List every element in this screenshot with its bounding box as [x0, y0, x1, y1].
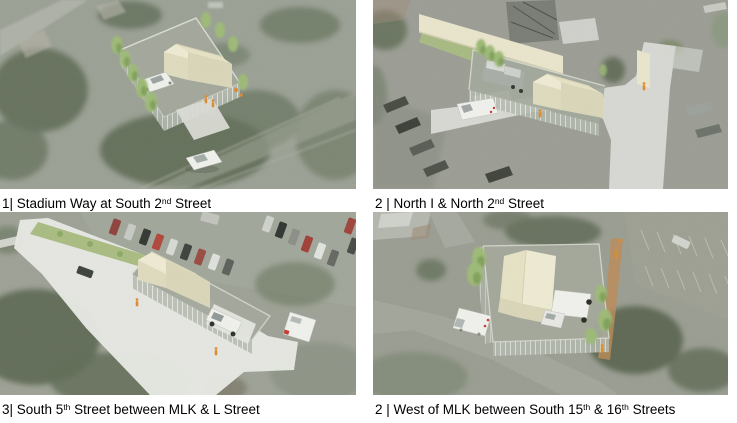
caption-superscript: nd [495, 196, 504, 206]
caption-panel-2: 2 | North I & North 2nd Street [375, 190, 544, 212]
photo-grain-overlay [373, 212, 728, 395]
photo-grain-overlay [373, 0, 728, 189]
aerial-rendering-panel-3 [0, 212, 356, 395]
aerial-rendering-panel-4 [373, 212, 728, 395]
figure-page: { "window": { "width": 737, "height": 42… [0, 0, 737, 423]
caption-superscript: th [622, 402, 629, 412]
caption-superscript: nd [162, 196, 171, 206]
caption-text: Street [171, 196, 211, 211]
caption-panel-1: 1| Stadium Way at South 2nd Street [2, 190, 211, 212]
photo-grain-overlay [0, 212, 356, 395]
aerial-rendering-panel-2 [373, 0, 728, 189]
photo-grain-overlay [0, 0, 356, 189]
aerial-rendering-panel-1 [0, 0, 356, 189]
caption-text: 1| Stadium Way at South 2 [2, 196, 162, 211]
site-image-west-of-mlk [373, 212, 728, 395]
caption-text: Streets [629, 402, 676, 417]
site-image-stadium-way [0, 0, 356, 189]
caption-text: 2 | North I & North 2 [375, 196, 495, 211]
caption-panel-4: 2 | West of MLK between South 15th & 16t… [375, 396, 675, 418]
caption-panel-3: 3| South 5th Street between MLK & L Stre… [2, 396, 260, 418]
caption-text: 3| South 5 [2, 402, 63, 417]
caption-text: & 16 [590, 402, 622, 417]
caption-text: 2 | West of MLK between South 15 [375, 402, 583, 417]
caption-text: Street between MLK & L Street [70, 402, 259, 417]
site-image-south-5th [0, 212, 356, 395]
caption-text: Street [504, 196, 544, 211]
site-image-north-i [373, 0, 728, 189]
